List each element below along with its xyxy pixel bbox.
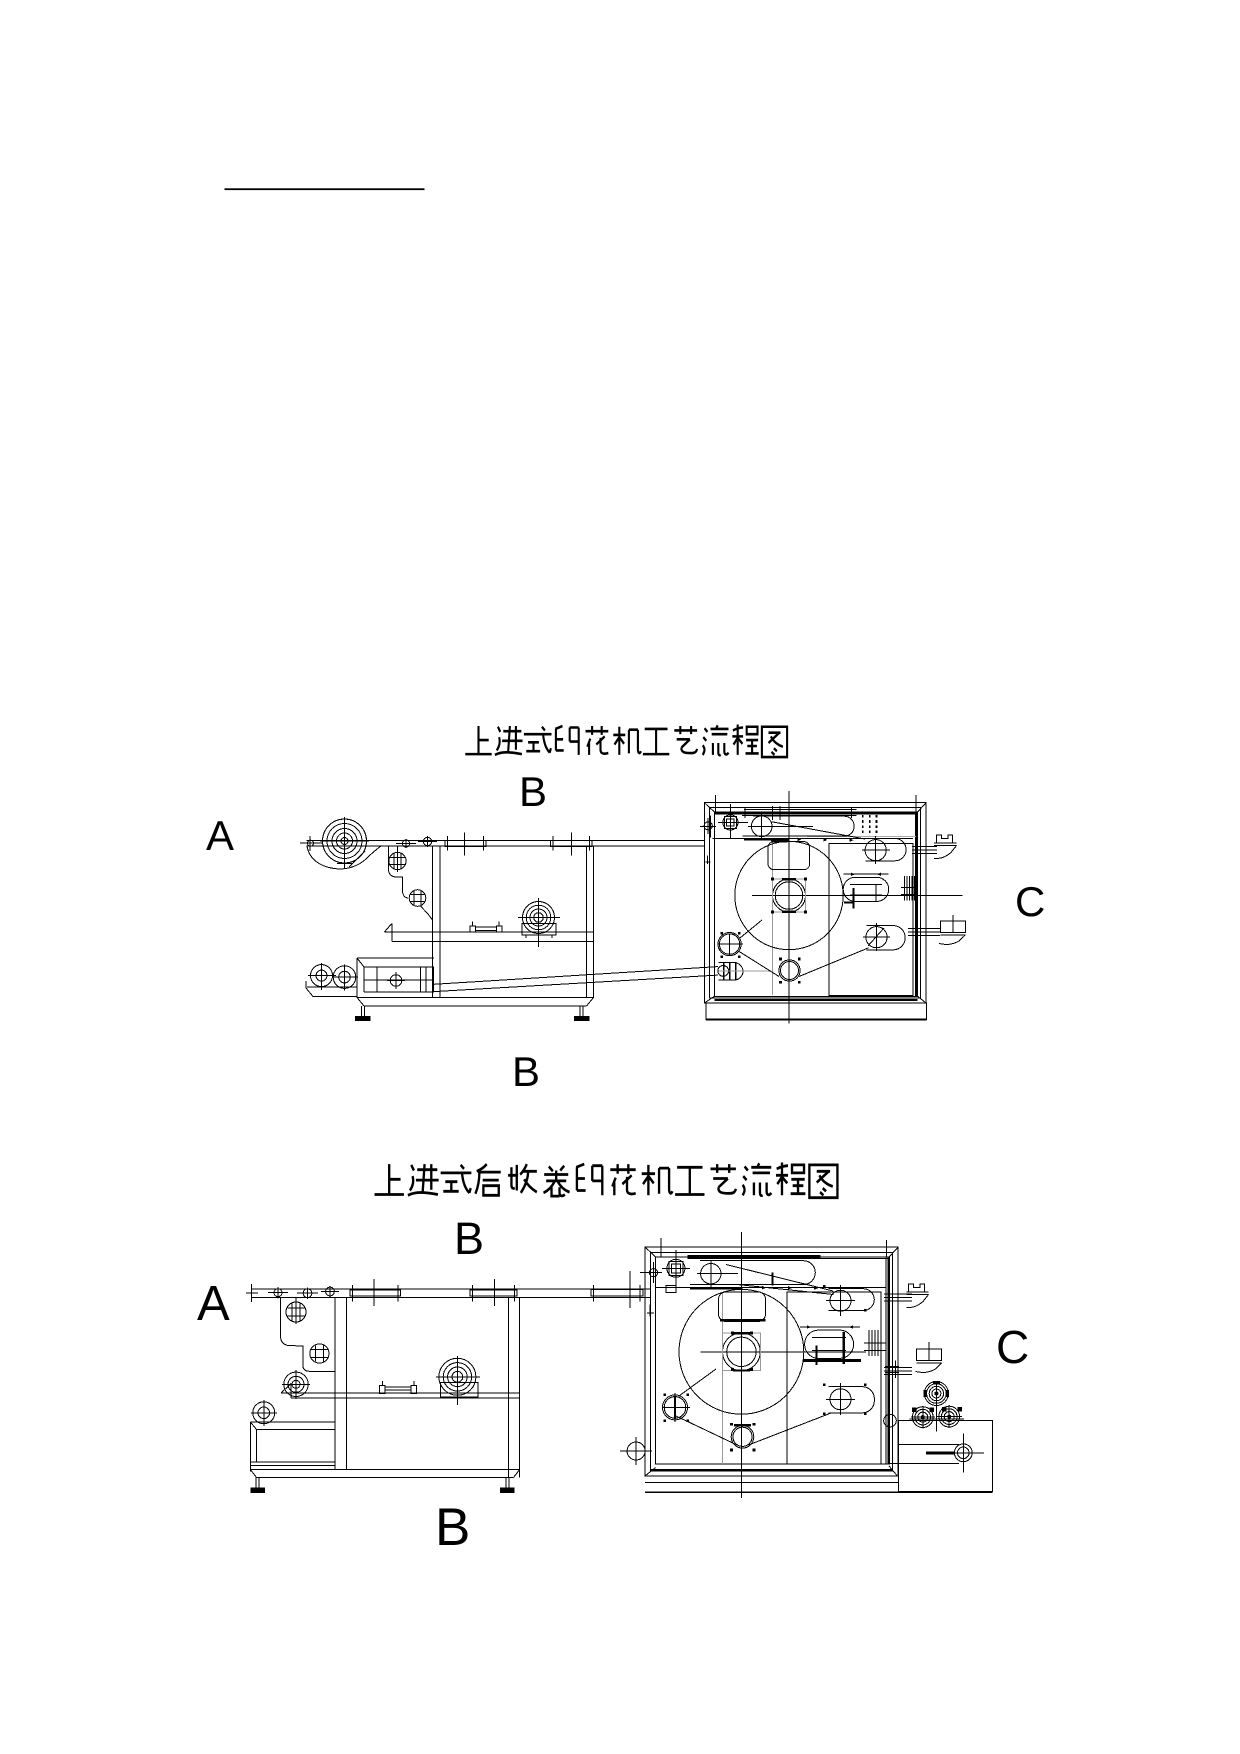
- svg-text:C: C: [1015, 878, 1045, 925]
- svg-text:C: C: [996, 1321, 1029, 1373]
- svg-text:B: B: [519, 768, 547, 815]
- svg-text:B: B: [435, 1498, 470, 1557]
- svg-text:A: A: [197, 1277, 230, 1331]
- svg-text:B: B: [512, 1048, 540, 1095]
- svg-text:A: A: [206, 812, 234, 859]
- svg-text:B: B: [454, 1213, 484, 1264]
